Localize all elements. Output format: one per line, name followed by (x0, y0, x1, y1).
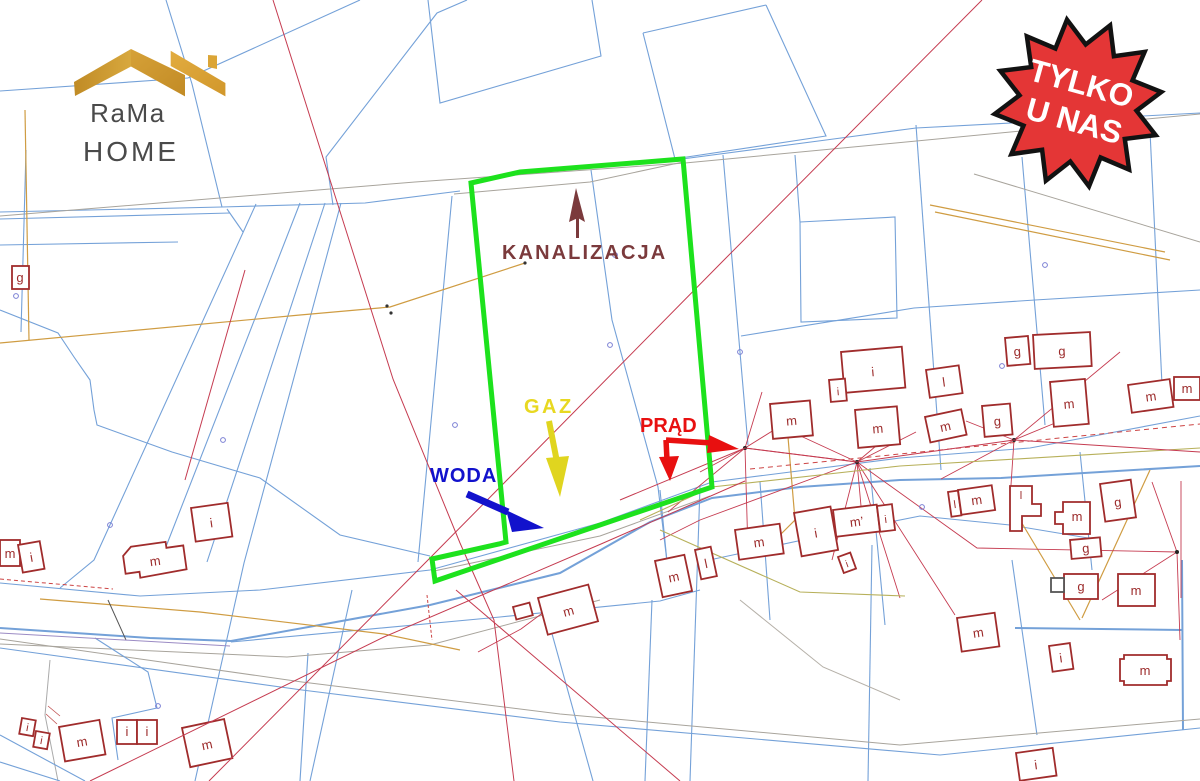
svg-text:m’: m’ (849, 513, 865, 530)
svg-text:m: m (970, 492, 983, 508)
svg-text:m: m (1182, 381, 1193, 396)
svg-text:m: m (1131, 583, 1142, 598)
svg-text:WODA: WODA (430, 465, 497, 487)
svg-text:m: m (1063, 396, 1075, 412)
svg-text:m: m (872, 421, 884, 437)
svg-text:i: i (146, 724, 149, 739)
svg-text:g: g (16, 270, 23, 285)
svg-text:g: g (1082, 540, 1091, 556)
svg-text:HOME: HOME (83, 136, 179, 167)
svg-text:PRĄD: PRĄD (640, 415, 697, 437)
svg-text:m: m (1072, 509, 1083, 524)
svg-text:m: m (753, 534, 766, 550)
svg-text:m: m (785, 413, 797, 429)
svg-text:RaMa: RaMa (90, 98, 166, 128)
svg-text:m: m (1144, 388, 1157, 404)
svg-text:m: m (149, 553, 162, 569)
svg-text:KANALIZACJA: KANALIZACJA (502, 242, 667, 264)
svg-text:m: m (972, 625, 985, 641)
svg-text:g: g (1077, 579, 1084, 594)
svg-text:i: i (126, 724, 129, 739)
svg-text:g: g (993, 413, 1002, 429)
svg-text:g: g (1058, 343, 1066, 358)
svg-text:m: m (5, 546, 16, 561)
svg-text:GAZ: GAZ (524, 396, 574, 418)
svg-text:l: l (1020, 490, 1022, 502)
svg-text:g: g (1013, 344, 1022, 360)
svg-text:m: m (1140, 663, 1151, 678)
